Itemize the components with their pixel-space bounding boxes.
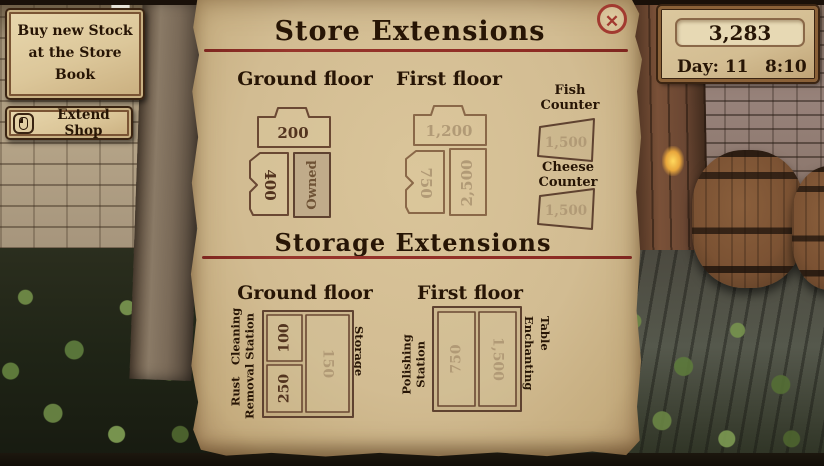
room-price: 750 — [417, 167, 435, 198]
fish-counter-box[interactable]: 1,500 — [536, 117, 598, 163]
storage-label: Storage — [352, 326, 366, 406]
money-value: 3,283 — [675, 18, 805, 47]
cell-price: 100 — [277, 323, 293, 352]
store-extensions-title: Store Extensions — [190, 16, 630, 47]
mouse-icon — [13, 113, 34, 134]
room-price: 1,200 — [426, 122, 473, 140]
divider-rule — [202, 256, 632, 259]
cell-price: 250 — [277, 374, 293, 403]
enchanting-table-label: Enchanting Table — [522, 316, 552, 416]
store-first-floor-map: 1,200 750 2,500 — [398, 103, 494, 221]
fish-counter-label: Fish Counter — [530, 84, 610, 114]
cell-price: 150 — [320, 349, 336, 378]
store-ground-floor-map: 200 400 Owned — [242, 105, 338, 223]
clock-time: 8:10 — [765, 57, 807, 77]
bottom-edge — [0, 453, 824, 466]
room-price: 200 — [277, 124, 308, 142]
storage-first-floor-map: 750 1,500 — [432, 306, 522, 412]
counter-price: 1,500 — [545, 203, 587, 219]
day-counter: Day: 11 — [677, 57, 749, 77]
storage-ground-floor-map: 100 250 150 — [262, 310, 354, 418]
polishing-station-label: PolishingStation — [400, 329, 429, 399]
extend-shop-button[interactable]: Extend Shop — [5, 106, 133, 140]
money-panel: 3,283 Day: 11 8:10 — [658, 6, 818, 82]
cell-price: 1,500 — [490, 337, 506, 381]
storage-first-floor-header: First floor — [400, 282, 540, 304]
store-first-floor-header: First floor — [379, 68, 519, 90]
storage-extensions-title: Storage Extensions — [190, 228, 636, 257]
store-extensions-panel: ✕ Store Extensions Ground floor 200 400 … — [190, 0, 642, 457]
room-price: 2,500 — [458, 160, 476, 207]
room-price: 400 — [261, 169, 279, 200]
store-ground-floor-header: Ground floor — [225, 68, 385, 90]
divider-rule — [204, 49, 628, 52]
cheese-counter-box[interactable]: 1,500 — [536, 187, 598, 231]
lantern-glow — [662, 146, 684, 176]
counter-price: 1,500 — [545, 135, 587, 151]
ivy-plants — [608, 285, 824, 466]
stock-tooltip: Buy new Stock at the Store Book — [5, 8, 145, 100]
cell-price: 750 — [449, 344, 465, 373]
room-status: Owned — [305, 160, 320, 209]
rust-removal-label: RustRemoval — [229, 356, 258, 426]
game-screen: ✕ Store Extensions Ground floor 200 400 … — [0, 0, 824, 466]
extend-shop-label: Extend Shop — [42, 107, 125, 139]
barrel — [692, 150, 804, 288]
